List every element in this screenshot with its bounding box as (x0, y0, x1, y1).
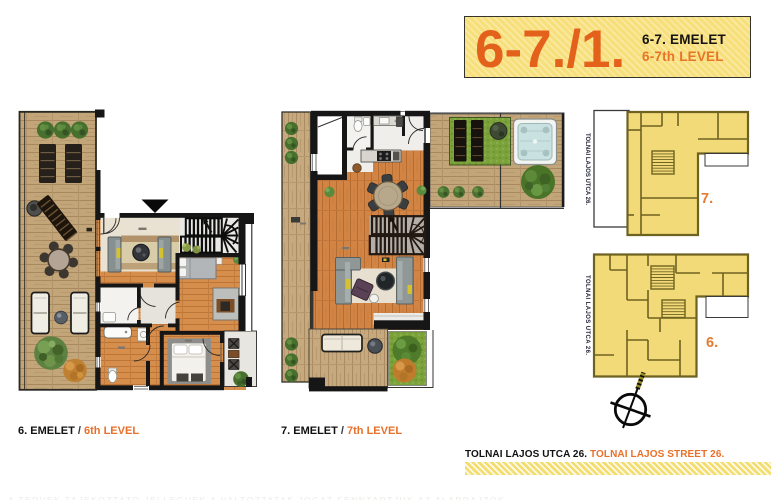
svg-text:6.: 6. (706, 335, 718, 351)
svg-text:TOLNAI LAJOS UTCA 26.: TOLNAI LAJOS UTCA 26. (584, 133, 590, 205)
svg-text:TOLNAI LAJOS UTCA 26.: TOLNAI LAJOS UTCA 26. (584, 275, 590, 355)
svg-text:7.: 7. (701, 191, 713, 207)
